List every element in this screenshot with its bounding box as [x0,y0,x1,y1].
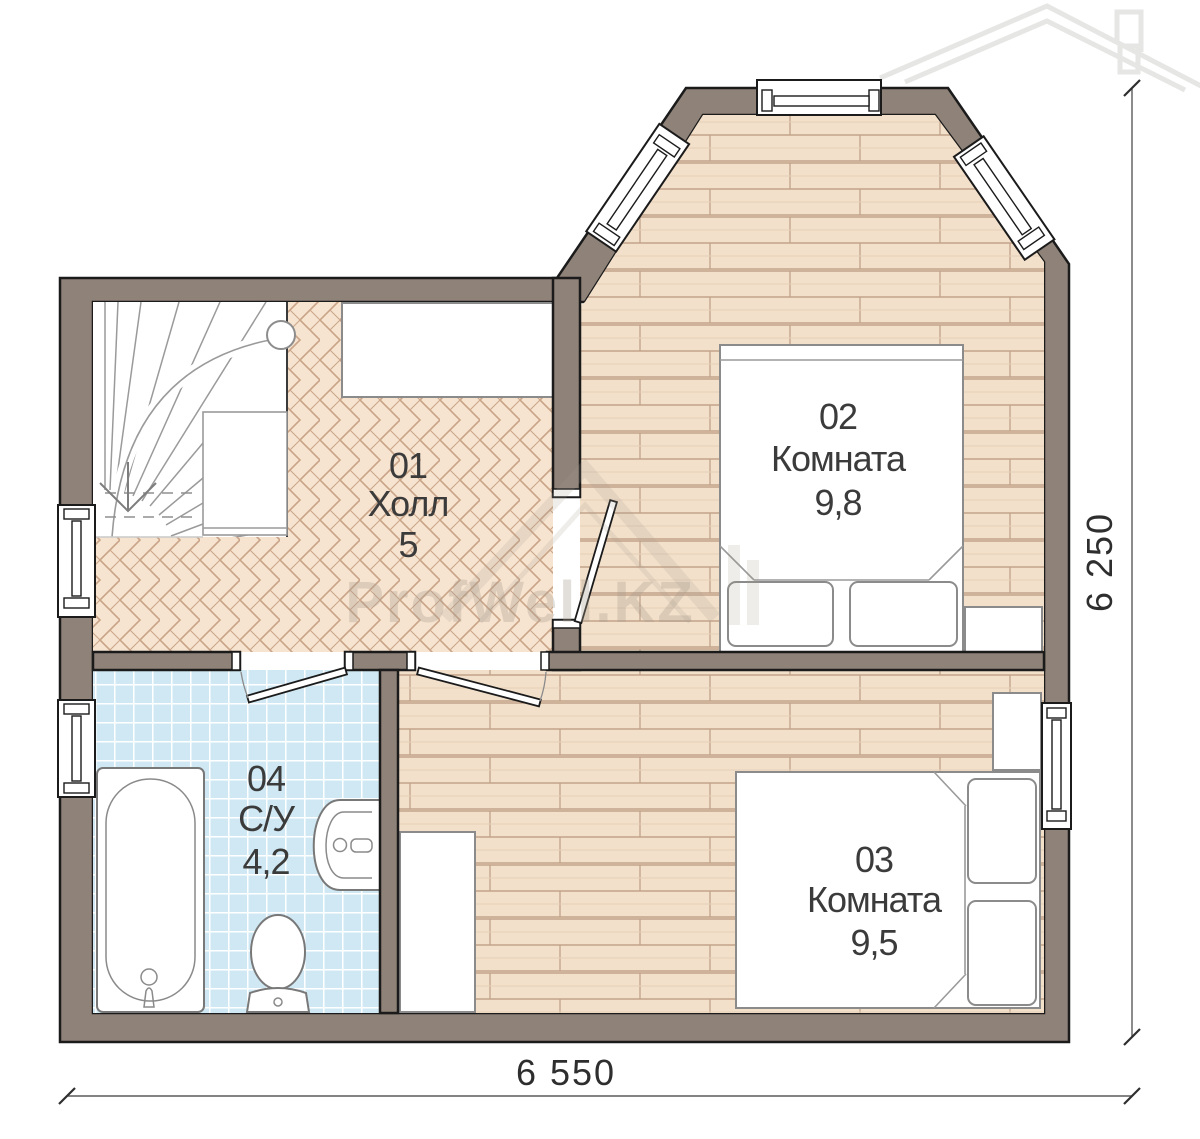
window-right [1042,703,1071,829]
room04-area: 4,2 [242,841,289,882]
window-left-lower [58,700,95,797]
dimension-right-text: 6 250 [1079,512,1120,612]
room02-nightstand [965,607,1042,652]
staircase [93,302,295,548]
dimension-bottom-text: 6 550 [516,1052,616,1093]
dimension-bottom: 6 550 [59,1052,1140,1104]
room03-name: Комната [807,879,943,920]
stair-landing [203,412,287,535]
stair-post [267,321,295,349]
room02-name: Комната [771,438,907,479]
room04-name: С/У [238,798,296,839]
watermark-text: ProfWell.KZ [345,570,695,635]
room01-number: 01 [389,445,427,486]
room02-area: 9,8 [814,482,861,523]
room01-name: Холл [368,483,449,524]
dimension-right: 6 250 [1079,80,1140,1045]
room03-wardrobe [400,832,475,1012]
toilet [247,915,309,1012]
sink [314,800,380,890]
house-logo-icon [880,6,1200,90]
room03-dresser [993,693,1041,770]
room02-number: 02 [819,396,857,437]
floor-plan-drawing: ProfWell.KZ 01 Холл 5 02 Комната 9,8 03 … [0,0,1200,1139]
floor-plan-page: ProfWell.KZ 01 Холл 5 02 Комната 9,8 03 … [0,0,1200,1139]
hall-wardrobe [342,303,553,397]
room03-area: 9,5 [850,922,897,963]
room01-area: 5 [398,524,417,565]
room03-number: 03 [855,839,893,880]
bathtub [97,768,204,1012]
room04-number: 04 [247,758,285,799]
window-left-upper [58,505,95,617]
window-bay-top [757,80,881,115]
